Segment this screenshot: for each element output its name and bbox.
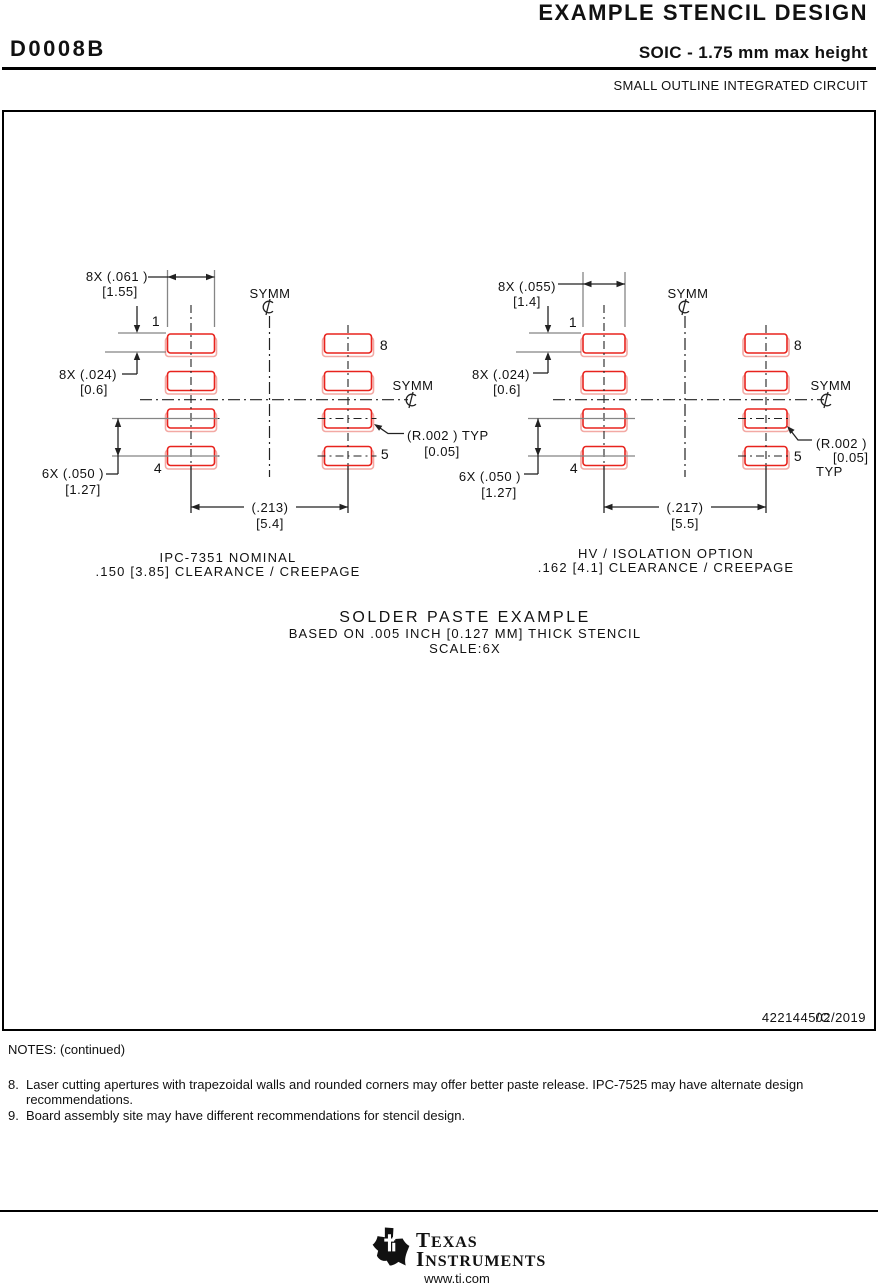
dim-span-mm: [5.5] bbox=[671, 516, 699, 531]
solder-note-line2: BASED ON .005 INCH [0.127 MM] THICK STEN… bbox=[289, 626, 642, 641]
centerline-symbol bbox=[263, 299, 273, 315]
dim-pitch-label: 6X (.050 ) bbox=[42, 466, 104, 481]
pin-8-label: 8 bbox=[794, 337, 802, 353]
brand-line-texas: TEXAS bbox=[416, 1232, 546, 1251]
solder-note-title: SOLDER PASTE EXAMPLE bbox=[339, 609, 591, 626]
left-caption-line2: .150 [3.85] CLEARANCE / CREEPAGE bbox=[95, 564, 360, 579]
stencil-pads bbox=[161, 334, 793, 469]
dim-pad-width-label: 8X (.055) bbox=[498, 279, 556, 294]
stencil-diagram-hv-isolation: 8X (.055) [1.4] SYMM SYMM 8X (.024) [0.6… bbox=[459, 272, 869, 575]
note-item-8: 8. Laser cutting apertures with trapezoi… bbox=[8, 1077, 858, 1108]
dim-pitch-mm: [1.27] bbox=[65, 482, 101, 497]
pin-1-label: 1 bbox=[152, 313, 160, 329]
radius-typ: TYP bbox=[816, 464, 843, 479]
pin-8-label: 8 bbox=[380, 337, 388, 353]
dim-span-label: (.213) bbox=[252, 500, 289, 515]
radius-mm: [0.05] bbox=[424, 444, 460, 459]
ti-url: www.ti.com bbox=[372, 1271, 542, 1286]
footer-rule bbox=[0, 1210, 878, 1212]
ti-logo-icon bbox=[372, 1226, 410, 1267]
right-caption-line1: HV / ISOLATION OPTION bbox=[578, 546, 754, 561]
dim-span-label: (.217) bbox=[667, 500, 704, 515]
stencil-diagram-ipc7351: 8X (.061 ) [1.55] SYMM SYMM 8X (.024) [0… bbox=[42, 269, 489, 579]
dim-pad-gap-label: 8X (.024) bbox=[472, 367, 530, 382]
pin-4-label: 4 bbox=[570, 460, 578, 476]
dim-pad-width-mm: [1.4] bbox=[513, 294, 541, 309]
dim-span-mm: [5.4] bbox=[256, 516, 284, 531]
note-text: Laser cutting apertures with trapezoidal… bbox=[26, 1077, 858, 1108]
drawing-date: 02/2019 bbox=[816, 1010, 867, 1025]
dim-pad-width-mm: [1.55] bbox=[102, 284, 138, 299]
symm-top-label: SYMM bbox=[250, 286, 291, 301]
ti-brand: TEXAS INSTRUMENTS bbox=[372, 1226, 546, 1270]
centerline-symbol bbox=[679, 299, 689, 315]
note-item-9: 9. Board assembly site may have differen… bbox=[8, 1108, 858, 1124]
radius-label: (R.002 ) TYP bbox=[407, 428, 489, 443]
right-caption-line2: .162 [4.1] CLEARANCE / CREEPAGE bbox=[538, 560, 795, 575]
dim-pitch-label: 6X (.050 ) bbox=[459, 469, 521, 484]
brand-line-instruments: INSTRUMENTS bbox=[416, 1251, 546, 1270]
solder-paste-note: SOLDER PASTE EXAMPLE BASED ON .005 INCH … bbox=[289, 609, 642, 656]
notes-section: NOTES: (continued) 8. Laser cutting aper… bbox=[8, 1042, 858, 1123]
dim-pitch-mm: [1.27] bbox=[481, 485, 517, 500]
symm-side-label: SYMM bbox=[811, 378, 852, 393]
dim-pad-width-label: 8X (.061 ) bbox=[86, 269, 148, 284]
pin-1-label: 1 bbox=[569, 314, 577, 330]
pin-5-label: 5 bbox=[381, 446, 389, 462]
left-caption-line1: IPC-7351 NOMINAL bbox=[160, 550, 297, 565]
note-text: Board assembly site may have different r… bbox=[26, 1108, 858, 1124]
solder-note-line3: SCALE:6X bbox=[429, 641, 501, 656]
dim-pad-gap-mm: [0.6] bbox=[493, 382, 521, 397]
notes-heading: NOTES: (continued) bbox=[8, 1042, 858, 1058]
note-number: 9. bbox=[8, 1108, 26, 1124]
symm-top-label: SYMM bbox=[668, 286, 709, 301]
radius-mm: [0.05] bbox=[833, 450, 869, 465]
pin-4-label: 4 bbox=[154, 460, 162, 476]
symm-side-label: SYMM bbox=[393, 378, 434, 393]
note-number: 8. bbox=[8, 1077, 26, 1108]
pin-5-label: 5 bbox=[794, 448, 802, 464]
radius-label: (R.002 ) bbox=[816, 436, 867, 451]
dim-pad-gap-mm: [0.6] bbox=[80, 382, 108, 397]
ti-brand-text: TEXAS INSTRUMENTS bbox=[416, 1226, 546, 1270]
dim-pad-gap-label: 8X (.024) bbox=[59, 367, 117, 382]
datasheet-page: EXAMPLE STENCIL DESIGN D0008B SOIC - 1.7… bbox=[0, 0, 878, 1288]
